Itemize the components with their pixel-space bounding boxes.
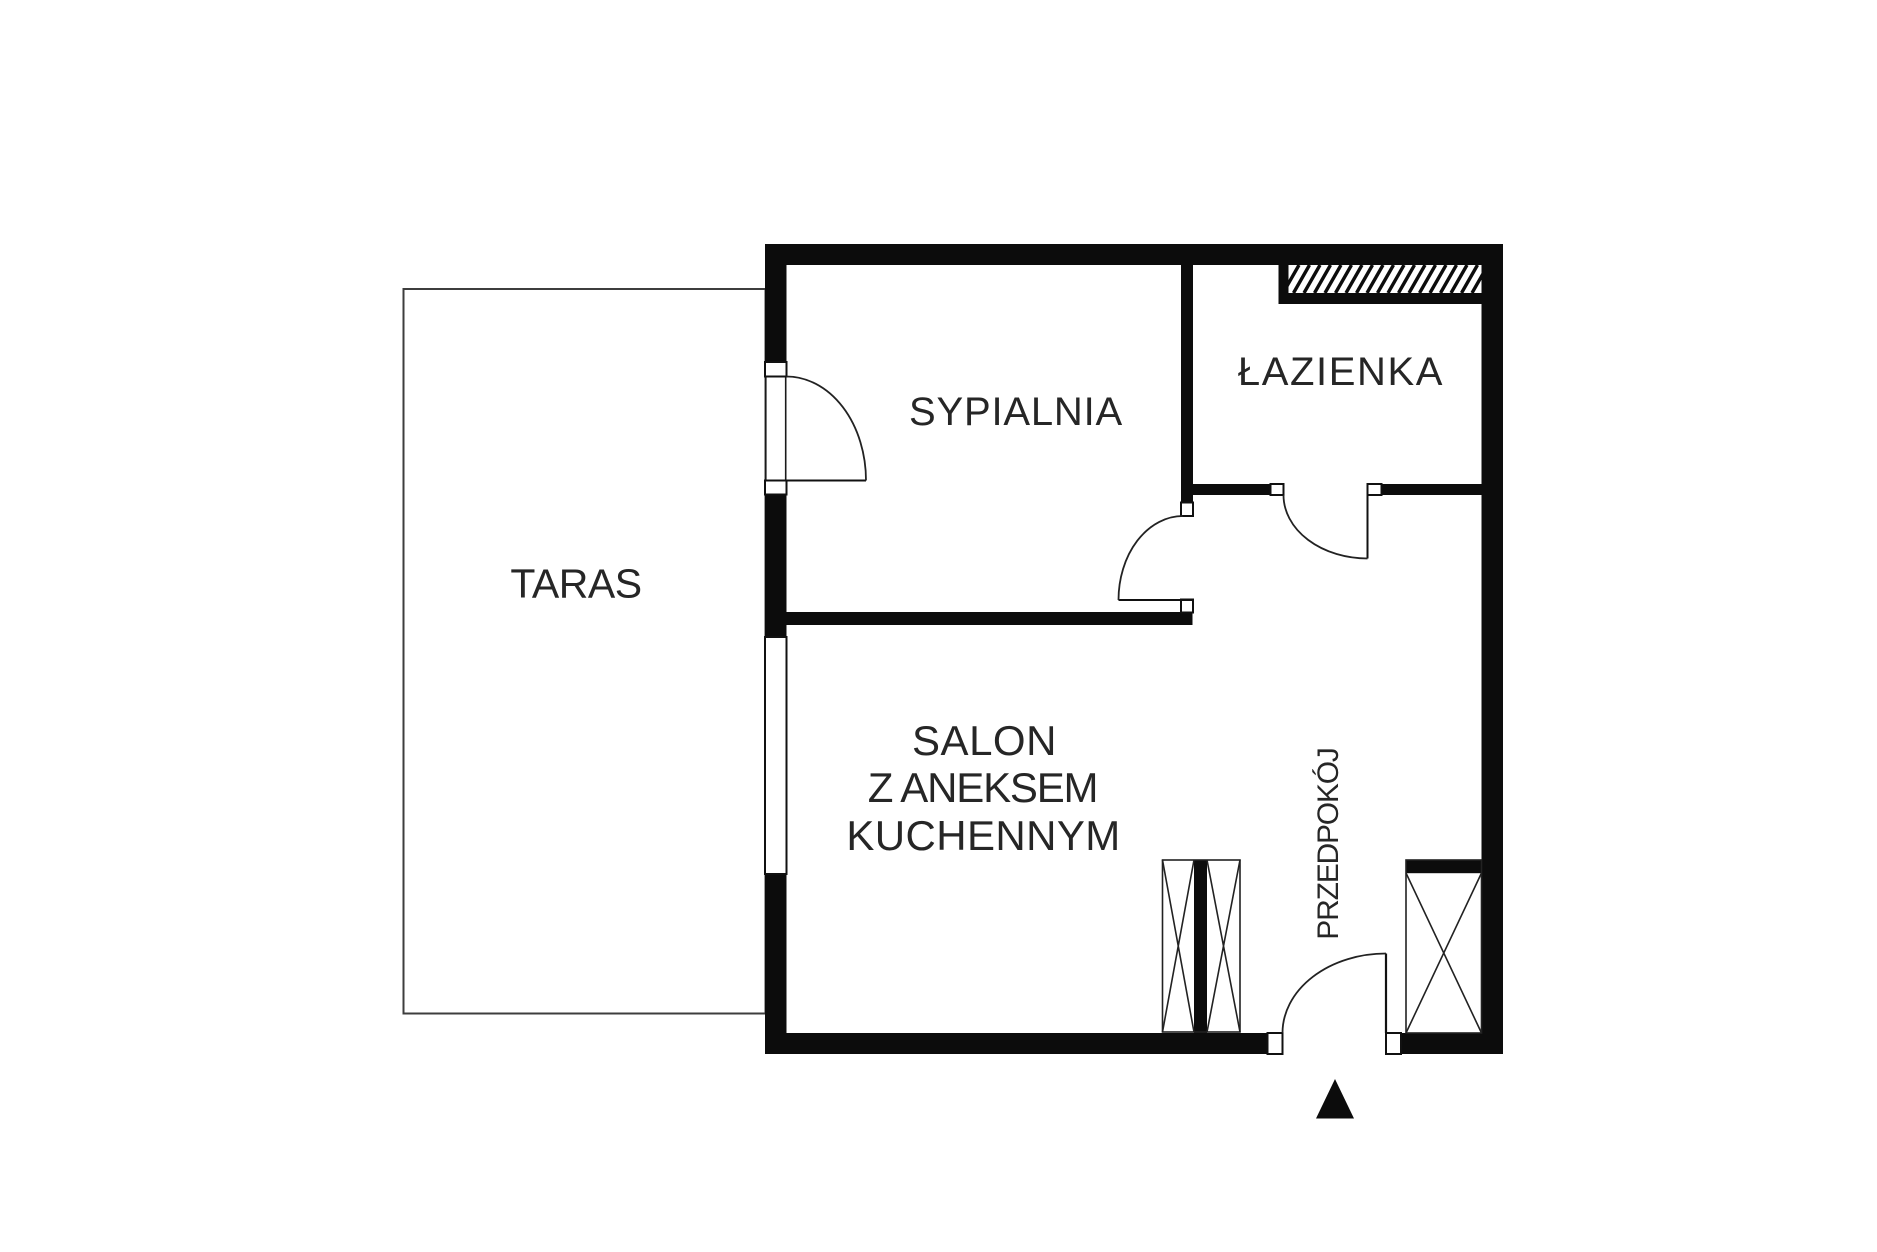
svg-text:ŁAZIENKA: ŁAZIENKA (1238, 350, 1444, 394)
svg-text:Z ANEKSEM: Z ANEKSEM (868, 764, 1098, 811)
svg-text:SALON: SALON (912, 717, 1057, 764)
svg-text:PRZEDPOKÓJ: PRZEDPOKÓJ (1312, 748, 1345, 939)
svg-text:SYPIALNIA: SYPIALNIA (909, 390, 1123, 434)
svg-text:TARAS: TARAS (510, 561, 641, 607)
svg-text:KUCHENNYM: KUCHENNYM (846, 812, 1120, 859)
